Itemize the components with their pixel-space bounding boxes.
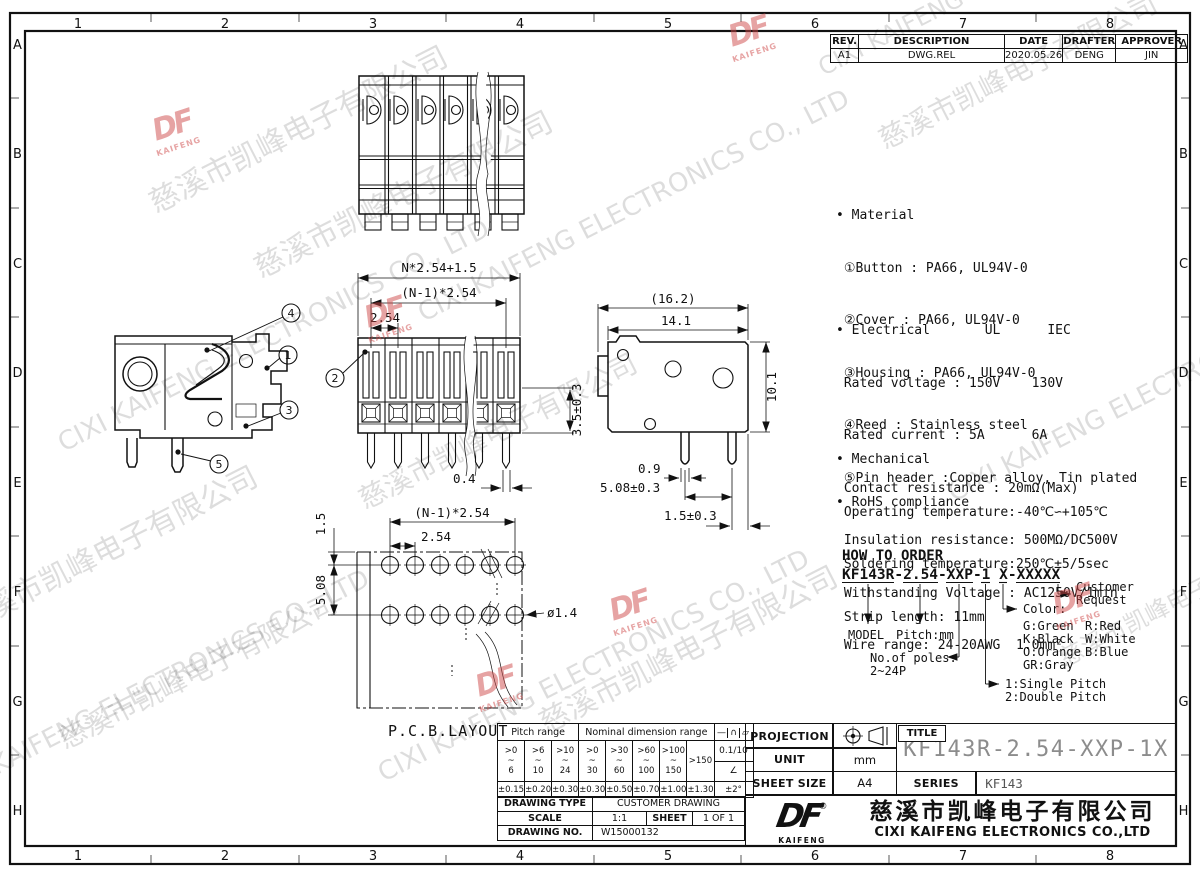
drafter-value: DENG xyxy=(1063,49,1116,63)
series-label: SERIES xyxy=(896,771,977,796)
projection-label: PROJECTION xyxy=(745,723,834,749)
order-pitch-type-2: 2:Double Pitch xyxy=(1005,690,1106,704)
zone-row: E xyxy=(1179,476,1187,491)
dim-front-total: N*2.54+1.5 xyxy=(401,260,476,275)
dim-pcb-pitch: 2.54 xyxy=(421,529,451,544)
range-cell: >0 ~ 6 xyxy=(498,741,525,782)
sheet-label: SHEET xyxy=(647,811,693,826)
zone-col: 1 xyxy=(74,849,82,864)
drawing-no-label: DRAWING NO. xyxy=(498,826,593,841)
dim-front-pin: 0.4 xyxy=(453,471,476,486)
projection-symbol-cell xyxy=(832,723,897,749)
zone-row: E xyxy=(13,476,21,491)
unit-label: UNIT xyxy=(745,747,834,772)
rev-value: A1 xyxy=(831,49,859,63)
range-cell: >150 xyxy=(687,741,714,782)
rev-col: REV. xyxy=(831,35,859,49)
dim-front-pitch: 2.54 xyxy=(370,310,400,325)
zone-col: 5 xyxy=(664,849,672,864)
revision-table: REV. DESCRIPTION DATE DRAFTER APPROVER A… xyxy=(830,34,1188,63)
revision-row: A1 DWG.REL 2020.05.26 DENG JIN xyxy=(831,49,1188,63)
zone-col: 3 xyxy=(369,849,377,864)
zone-row: H xyxy=(13,804,23,819)
zone-row: G xyxy=(1178,695,1188,710)
mechanical-notes: • Mechanical Operating temperature:-40℃∽… xyxy=(836,416,1109,644)
zone-col: 7 xyxy=(959,17,967,32)
callout-3: 3 xyxy=(286,404,293,417)
zone-col: 4 xyxy=(516,17,524,32)
scale-label: SCALE xyxy=(498,811,593,826)
zone-col: 6 xyxy=(811,17,819,32)
drawing-type-value: CUSTOMER DRAWING xyxy=(593,797,745,812)
series-value: KF143 xyxy=(975,771,1175,796)
dim-side-body: 14.1 xyxy=(661,313,691,328)
description-value: DWG.REL xyxy=(859,49,1005,63)
zone-col: 5 xyxy=(664,17,672,32)
pitch-range-header: Pitch range xyxy=(498,724,579,741)
dim-front-span: (N-1)*2.54 xyxy=(401,285,476,300)
order-pitch-type-1: 1:Single Pitch xyxy=(1005,677,1106,691)
approver-value: JIN xyxy=(1116,49,1188,63)
sheet-size-value: A4 xyxy=(832,771,897,796)
company-logo: DF® KAIFENG xyxy=(754,796,850,845)
unit-value: mm xyxy=(832,747,897,772)
note-line: • Electrical UL IEC xyxy=(836,322,1118,340)
zone-col: 6 xyxy=(811,849,819,864)
callout-2: 2 xyxy=(332,372,339,385)
note-line: • Mechanical xyxy=(836,451,1109,469)
nominal-range-header: Nominal dimension range xyxy=(579,724,714,741)
zone-row: A xyxy=(13,38,22,53)
range-cell: >0 ~ 30 xyxy=(579,741,606,782)
df-logo: DF xyxy=(773,796,822,835)
sheet: 1 2 3 4 5 6 7 8 1 2 3 4 5 6 7 8 A B C D … xyxy=(0,0,1200,876)
top-view xyxy=(359,72,524,236)
callout-5: 5 xyxy=(216,458,223,471)
drawing-no-value: W15000132 xyxy=(593,826,745,841)
zone-row: G xyxy=(12,695,22,710)
dim-pcb-edge: 1.5 xyxy=(313,513,328,536)
sheet-value: 1 OF 1 xyxy=(693,811,745,826)
zone-col: 2 xyxy=(221,849,229,864)
company-name-cn: 慈溪市凯峰电子有限公司 xyxy=(850,800,1175,825)
dim-pcb-hole: ø1.4 xyxy=(547,605,577,620)
company-name-en: CIXI KAIFENG ELECTRONICS CO.,LTD xyxy=(850,825,1175,840)
zone-col: 1 xyxy=(74,17,82,32)
zone-row: D xyxy=(12,366,22,381)
dim-pcb-row: 5.08 xyxy=(313,575,328,605)
scale-value: 1:1 xyxy=(593,811,647,826)
date-value: 2020.05.26 xyxy=(1005,49,1063,63)
callout-balloons: 4 1 2 3 5 xyxy=(210,304,344,473)
note-line: Strip length: 11mm xyxy=(836,609,1109,627)
rohs-note: • RoHS compliance xyxy=(836,494,969,512)
drawing-info-table: DRAWING TYPE CUSTOMER DRAWING SCALE 1:1 … xyxy=(497,796,745,841)
zone-col: 8 xyxy=(1106,17,1114,32)
zone-row: H xyxy=(1179,804,1189,819)
zone-row: C xyxy=(13,257,22,272)
note-line: Soldering temperature:250℃±5/5sec xyxy=(836,556,1109,574)
range-cell: >10 ~ 24 xyxy=(552,741,579,782)
pcb-layout: 1.5 5.08 (N-1)*2.54 2.54 ø1.4 P.C.B.LAYO… xyxy=(313,505,577,740)
range-cell: >6 ~ 10 xyxy=(525,741,552,782)
dim-side-pin-edge: 1.5±0.3 xyxy=(664,508,717,523)
tolerance-table: Pitch range Nominal dimension range —∩▱ … xyxy=(497,723,754,798)
description-col: DESCRIPTION xyxy=(859,35,1005,49)
range-cell: >100 ~ 150 xyxy=(660,741,687,782)
drafter-col: DRAFTER xyxy=(1063,35,1116,49)
dim-side-pin-w: 0.9 xyxy=(638,461,661,476)
range-cell: >60 ~ 100 xyxy=(633,741,660,782)
zone-row: C xyxy=(1179,257,1188,272)
note-line: ①Button : PA66, UL94V-0 xyxy=(836,260,1137,278)
sheet-size-label: SHEET SIZE xyxy=(745,771,834,796)
dim-side-overall: (16.2) xyxy=(650,291,695,306)
zone-col: 7 xyxy=(959,849,967,864)
zone-row: F xyxy=(14,585,21,600)
zone-row: B xyxy=(13,147,22,162)
dim-side-pin-pitch: 5.08±0.3 xyxy=(600,480,660,495)
dim-side-height: 10.1 xyxy=(764,372,779,402)
revision-header-row: REV. DESCRIPTION DATE DRAFTER APPROVER xyxy=(831,35,1188,49)
front-view: N*2.54+1.5 (N-1)*2.54 2.54 3.5±0.3 0.4 xyxy=(358,260,584,492)
dim-pcb-span: (N-1)*2.54 xyxy=(414,505,489,520)
zone-col: 8 xyxy=(1106,849,1114,864)
zone-row: B xyxy=(1179,147,1188,162)
company-names: 慈溪市凯峰电子有限公司 CIXI KAIFENG ELECTRONICS CO.… xyxy=(850,800,1175,840)
callout-1: 1 xyxy=(285,349,292,362)
straightness-symbol: — xyxy=(716,728,727,738)
date-col: DATE xyxy=(1005,35,1063,49)
title-label: TITLE xyxy=(898,725,946,742)
df-logo-sub: KAIFENG xyxy=(754,836,850,845)
arc-symbol: ∩ xyxy=(727,728,739,738)
callout-4: 4 xyxy=(288,307,295,320)
note-line: Rated voltage : 150V 130V xyxy=(836,375,1118,393)
company-block: DF® KAIFENG 慈溪市凯峰电子有限公司 CIXI KAIFENG ELE… xyxy=(745,794,1176,846)
note-line: • Material xyxy=(836,207,1137,225)
section-view: 4 1 2 3 5 xyxy=(115,304,363,473)
zone-row: F xyxy=(1180,585,1187,600)
zone-col: 4 xyxy=(516,849,524,864)
approver-col: APPROVER xyxy=(1116,35,1188,49)
range-cell: >30 ~ 60 xyxy=(606,741,633,782)
pcb-layout-label: P.C.B.LAYOUT xyxy=(388,722,508,740)
dim-front-height: 3.5±0.3 xyxy=(569,384,584,437)
side-view: (16.2) 14.1 10.1 0.9 5.08±0.3 1.5±0.3 xyxy=(598,291,779,530)
drawing-type-label: DRAWING TYPE xyxy=(498,797,593,812)
zone-col: 3 xyxy=(369,17,377,32)
zone-col: 2 xyxy=(221,17,229,32)
zone-row: D xyxy=(1178,366,1188,381)
